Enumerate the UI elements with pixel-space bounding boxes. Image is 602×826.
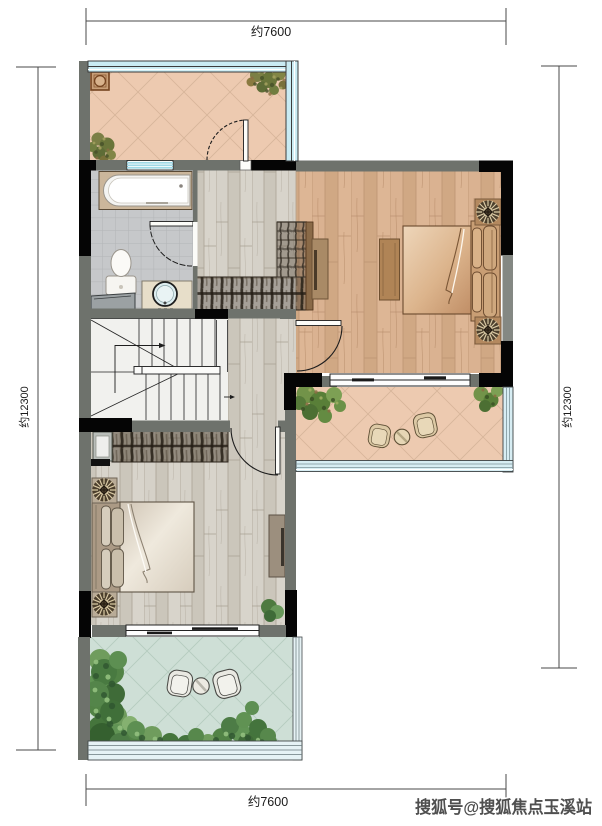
- svg-text:约7600: 约7600: [248, 794, 288, 809]
- svg-text:搜狐号@搜狐焦点玉溪站: 搜狐号@搜狐焦点玉溪站: [415, 797, 592, 817]
- svg-text:约7600: 约7600: [251, 24, 291, 39]
- svg-text:约12300: 约12300: [18, 386, 31, 428]
- svg-text:约12300: 约12300: [561, 386, 574, 428]
